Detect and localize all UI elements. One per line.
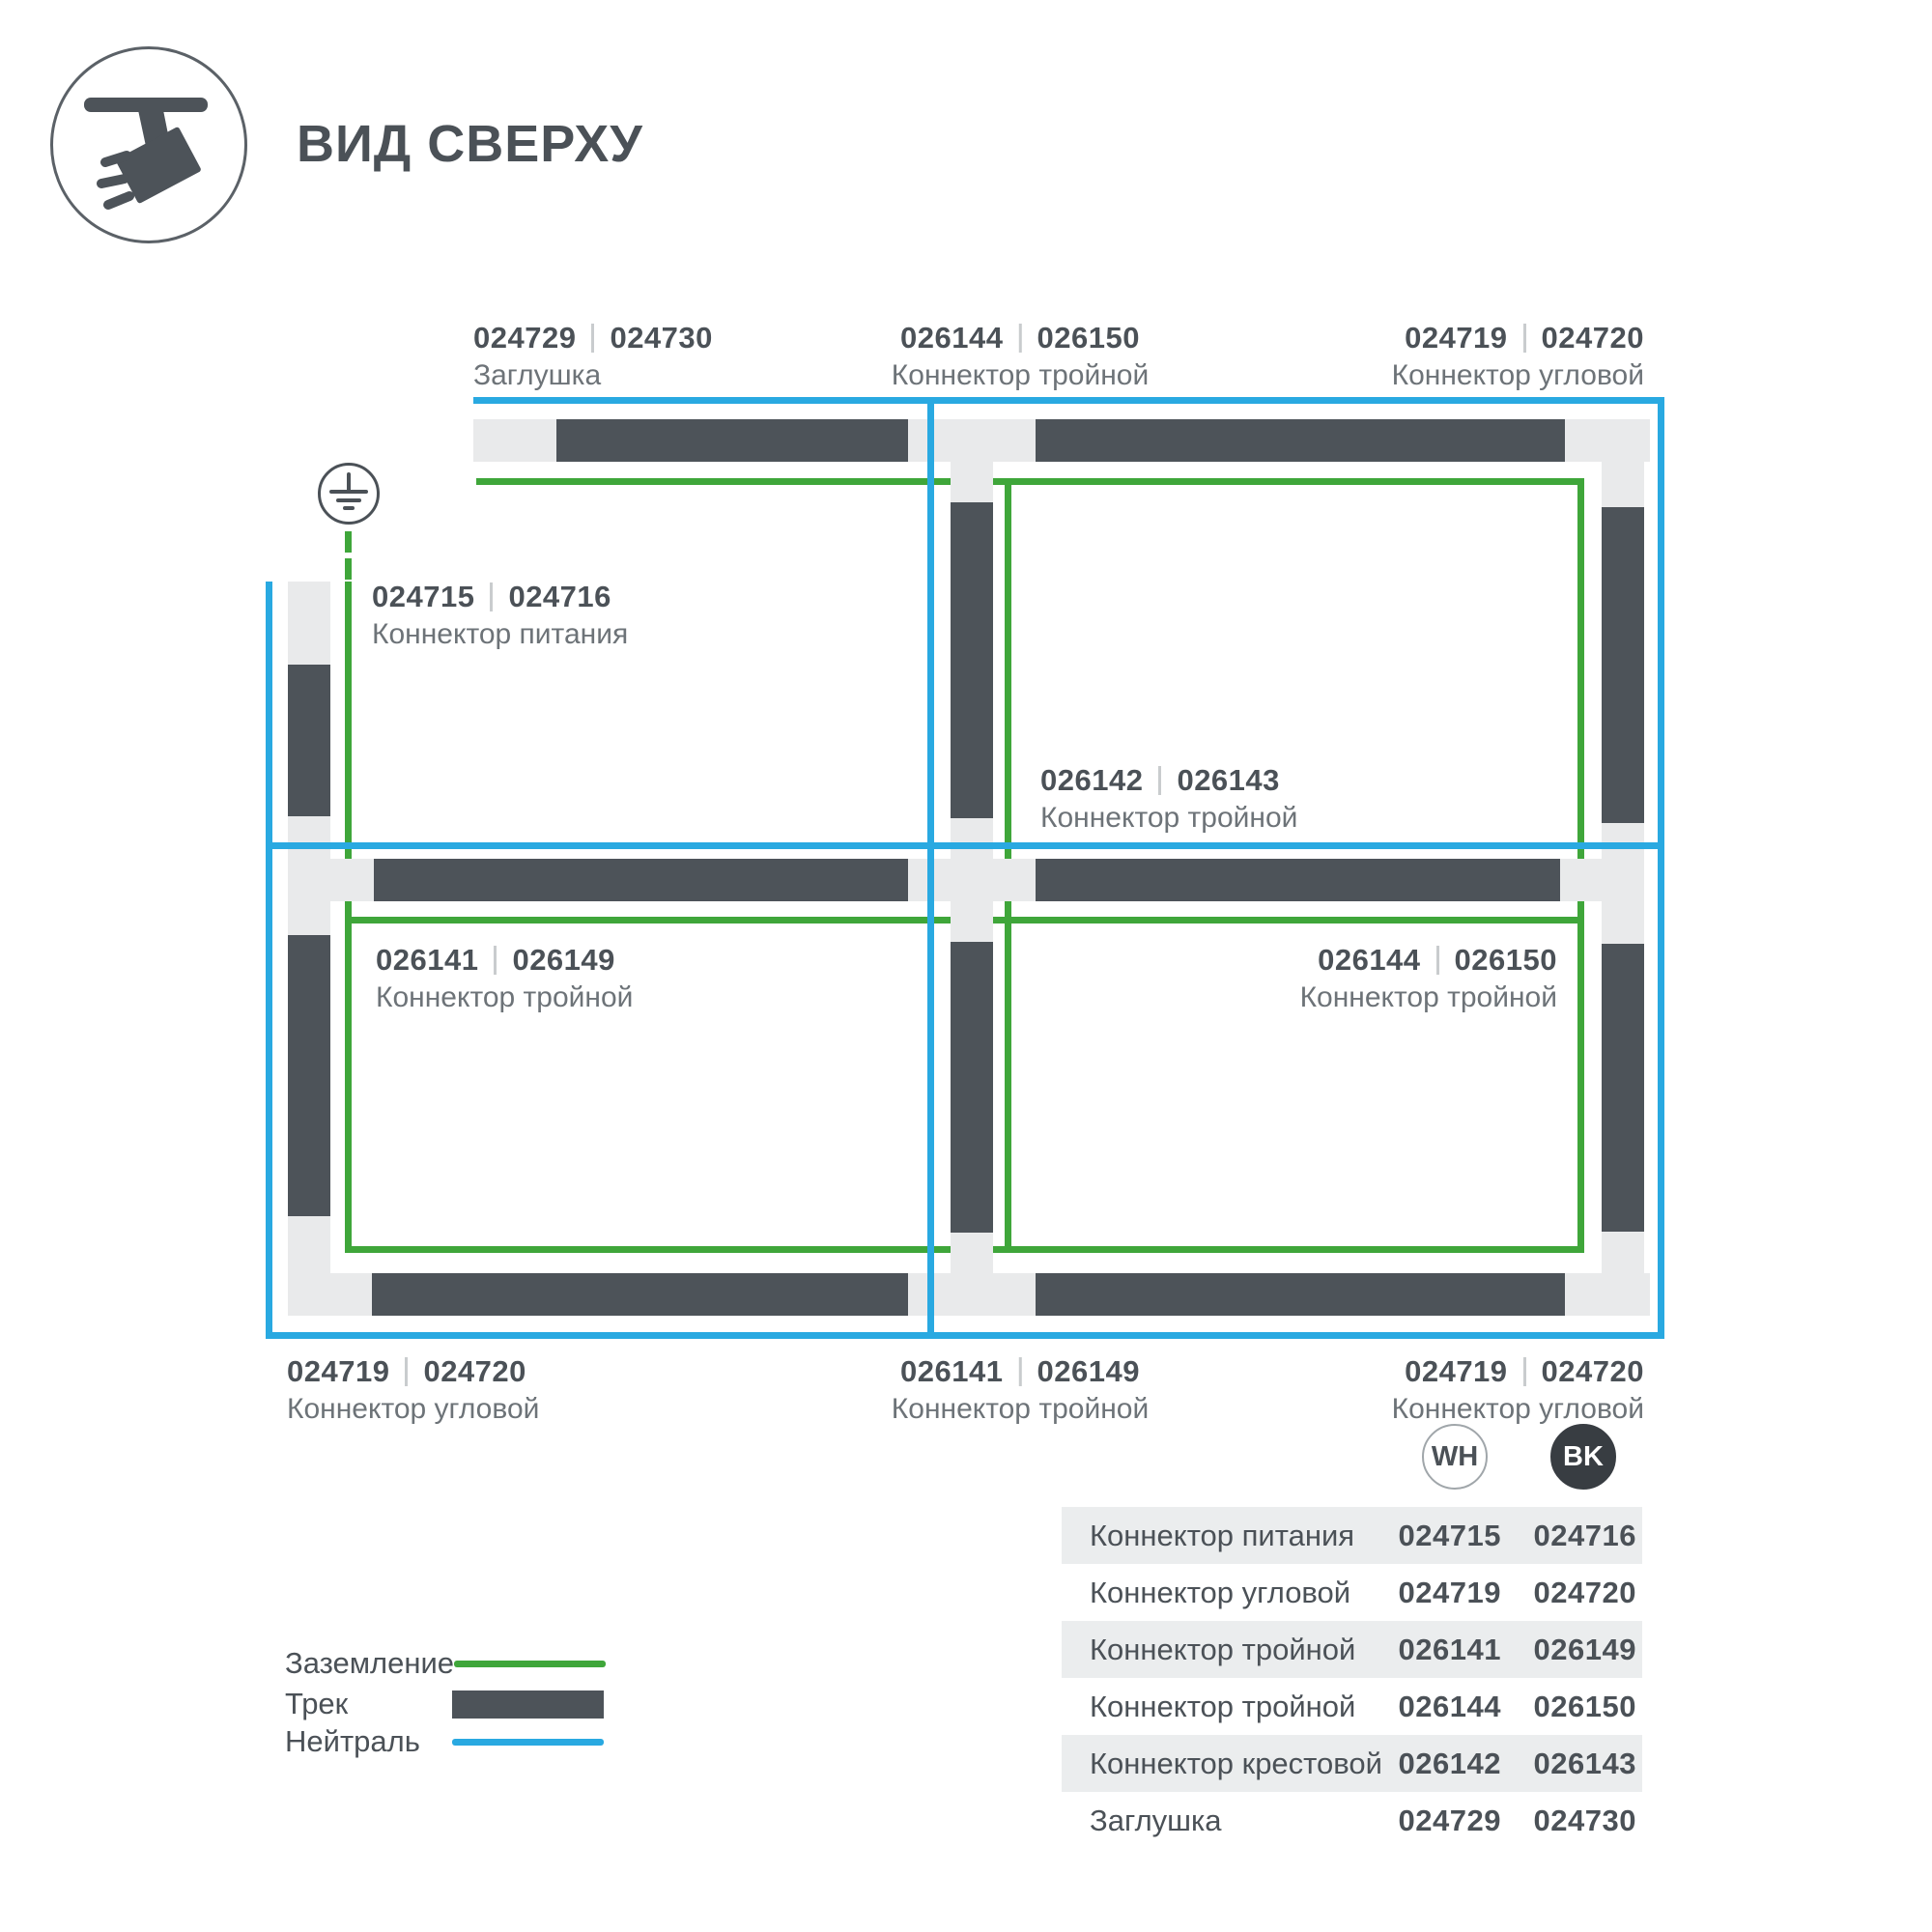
neutral-line [266,842,1664,849]
part-codes: 026144026150 [1300,943,1557,978]
track-segment [556,419,908,462]
part-name: Коннектор тройной [892,359,1149,392]
legend-label: Заземление [285,1646,454,1681]
wh-label: WH [1432,1441,1478,1473]
part-label: 026141026149 Коннектор тройной [376,943,633,1014]
code-divider [1523,324,1526,353]
code-bk: 024720 [1542,321,1644,355]
part-name: Коннектор угловой [1392,359,1644,392]
legend-label: Нейтраль [285,1724,420,1759]
code-divider [1019,1357,1022,1386]
code-divider [405,1357,408,1386]
part-label: 026144026150 Коннектор тройной [1300,943,1557,1014]
neutral-line-swatch [452,1739,604,1746]
code-divider [1158,766,1161,795]
code-wh: 026141 [376,943,478,978]
part-label: 026144026150 Коннектор тройной [892,321,1149,392]
track-spotlight-icon [50,46,247,243]
part-label: 024719024720 Коннектор угловой [287,1354,539,1426]
ground-line [345,582,352,1252]
code-bk: 024730 [610,321,712,355]
row-code-wh: 024719 [1399,1576,1501,1610]
part-codes: 026141026149 [892,1354,1149,1389]
part-label: 026142026143 Коннектор тройной [1040,763,1297,835]
row-code-wh: 026141 [1399,1633,1501,1667]
wh-color-badge: WH [1422,1424,1488,1490]
code-wh: 026144 [900,321,1003,355]
track-segment [951,502,993,818]
bk-label: BK [1563,1441,1604,1473]
code-divider [1436,946,1439,975]
row-name: Коннектор крестовой [1090,1747,1382,1781]
part-label: 024715024716 Коннектор питания [372,580,628,651]
part-name: Коннектор питания [372,618,628,651]
code-wh: 026142 [1040,763,1143,798]
row-code-bk: 026149 [1534,1633,1636,1667]
row-code-bk: 026143 [1534,1747,1636,1781]
row-name: Коннектор тройной [1090,1633,1355,1667]
track-segment [1036,419,1565,462]
row-name: Коннектор тройной [1090,1690,1355,1724]
track-segment [372,1273,908,1316]
track-segment [1036,859,1560,901]
table-row: Заглушка 024729 024730 [1062,1792,1642,1849]
part-codes: 026142026143 [1040,763,1297,798]
row-code-bk: 024730 [1534,1804,1636,1838]
track-segment [288,935,330,1216]
part-codes: 024719024720 [287,1354,539,1389]
ground-line-swatch [454,1661,606,1667]
track-segment [1602,944,1644,1232]
code-divider [490,582,493,611]
row-code-bk: 024720 [1534,1576,1636,1610]
code-bk: 024720 [1542,1354,1644,1389]
page: ВИД СВЕРХУ [0,0,1932,1932]
part-label: 026141026149 Коннектор тройной [892,1354,1149,1426]
row-name: Коннектор угловой [1090,1576,1350,1610]
neutral-line [266,582,272,1338]
neutral-line [266,1332,1664,1339]
row-code-wh: 024729 [1399,1804,1501,1838]
part-name: Заглушка [473,359,713,392]
row-code-wh: 026142 [1399,1747,1501,1781]
part-label: 024719024720 Коннектор угловой [1392,321,1644,392]
connector-pad [951,818,993,942]
part-name: Коннектор тройной [376,981,633,1014]
table-row: Коннектор тройной 026141 026149 [1062,1621,1642,1678]
neutral-line [473,397,1664,404]
track-segment [288,665,330,816]
track-bar-swatch [452,1690,604,1719]
code-divider [494,946,497,975]
track-segment [951,942,993,1233]
legend-label: Трек [285,1687,348,1721]
page-title: ВИД СВЕРХУ [297,114,643,174]
ground-feed-dash [345,531,352,553]
part-codes: 024719024720 [1392,321,1644,355]
ground-line [476,478,1584,485]
code-wh: 024719 [287,1354,389,1389]
bk-color-badge: BK [1550,1424,1616,1490]
code-bk: 024720 [423,1354,526,1389]
code-wh: 024715 [372,580,474,614]
parts-table: Коннектор питания 024715 024716 Коннекто… [1062,1507,1642,1849]
legend-item-neutral: Нейтраль [285,1723,604,1760]
code-bk: 026150 [1455,943,1557,978]
code-bk: 026149 [1037,1354,1140,1389]
row-code-bk: 026150 [1534,1690,1636,1724]
code-bk: 024716 [508,580,611,614]
row-name: Заглушка [1090,1804,1222,1838]
track-segment [1036,1273,1565,1316]
row-code-wh: 024715 [1399,1519,1501,1553]
part-codes: 026141026149 [376,943,633,978]
legend-item-track: Трек [285,1686,604,1722]
part-codes: 024715024716 [372,580,628,614]
code-divider [1523,1357,1526,1386]
row-code-wh: 026144 [1399,1690,1501,1724]
row-code-bk: 024716 [1534,1519,1636,1553]
code-bk: 026143 [1177,763,1279,798]
part-name: Коннектор угловой [1392,1393,1644,1426]
part-label: 024719024720 Коннектор угловой [1392,1354,1644,1426]
neutral-line [927,397,934,1338]
code-wh: 026141 [900,1354,1003,1389]
track-segment [1602,507,1644,823]
code-wh: 024719 [1405,1354,1507,1389]
part-name: Коннектор тройной [892,1393,1149,1426]
neutral-line [1658,397,1664,1338]
part-codes: 024729024730 [473,321,713,355]
table-row: Коннектор тройной 026144 026150 [1062,1678,1642,1735]
ground-feed-dash [345,558,352,580]
table-row: Коннектор питания 024715 024716 [1062,1507,1642,1564]
code-bk: 026150 [1037,321,1140,355]
earth-ground-icon [318,463,380,525]
part-label: 024729024730 Заглушка [473,321,713,392]
code-divider [1019,324,1022,353]
code-divider [591,324,594,353]
part-name: Коннектор тройной [1300,981,1557,1014]
row-name: Коннектор питания [1090,1519,1354,1553]
table-row: Коннектор крестовой 026142 026143 [1062,1735,1642,1792]
part-name: Коннектор тройной [1040,802,1297,835]
track-segment [374,859,908,901]
code-wh: 026144 [1318,943,1420,978]
table-row: Коннектор угловой 024719 024720 [1062,1564,1642,1621]
legend-item-ground: Заземление [285,1645,604,1682]
part-name: Коннектор угловой [287,1393,539,1426]
part-codes: 026144026150 [892,321,1149,355]
code-wh: 024719 [1405,321,1507,355]
code-bk: 026149 [512,943,614,978]
part-codes: 024719024720 [1392,1354,1644,1389]
code-wh: 024729 [473,321,576,355]
